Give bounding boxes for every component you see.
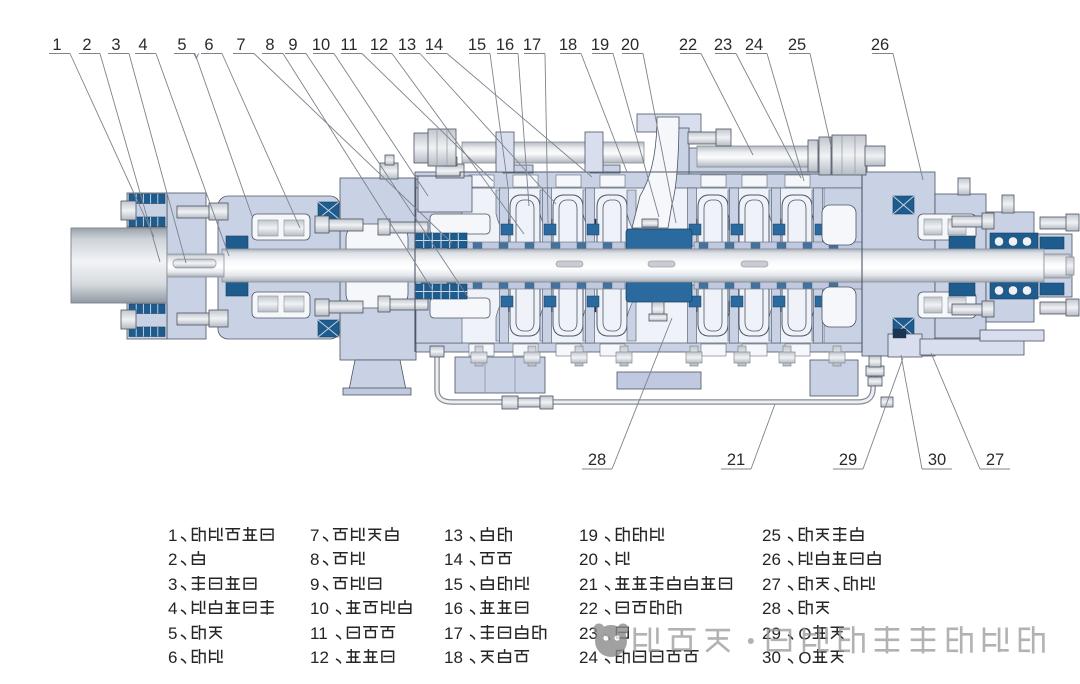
svg-text:28: 28: [762, 599, 781, 618]
svg-text:14: 14: [425, 36, 443, 54]
svg-text:2: 2: [82, 36, 91, 54]
svg-text:16: 16: [496, 36, 514, 54]
svg-text:4: 4: [138, 36, 147, 54]
svg-text:23: 23: [714, 36, 732, 54]
svg-text:13: 13: [444, 526, 463, 545]
svg-text:8: 8: [265, 36, 274, 54]
svg-text:24: 24: [745, 36, 763, 54]
svg-text:2: 2: [168, 550, 177, 569]
svg-text:7: 7: [236, 36, 245, 54]
svg-text:25: 25: [762, 526, 781, 545]
svg-text:1: 1: [52, 36, 61, 54]
svg-text:16: 16: [444, 599, 463, 618]
svg-text:10: 10: [312, 36, 330, 54]
svg-text:17: 17: [444, 624, 463, 643]
svg-text:27: 27: [986, 451, 1004, 469]
svg-text:3: 3: [168, 575, 177, 594]
svg-text:24: 24: [579, 648, 598, 667]
svg-text:7: 7: [310, 526, 319, 545]
svg-text:18: 18: [444, 648, 463, 667]
svg-text:25: 25: [788, 36, 806, 54]
svg-text:11: 11: [340, 36, 357, 54]
svg-text:28: 28: [588, 451, 606, 469]
svg-text:15: 15: [468, 36, 486, 54]
svg-text:14: 14: [444, 550, 463, 569]
svg-text:5: 5: [177, 36, 186, 54]
svg-text:17: 17: [523, 36, 541, 54]
svg-text:21: 21: [579, 575, 598, 594]
svg-text:30: 30: [928, 451, 946, 469]
svg-text:20: 20: [579, 550, 598, 569]
svg-text:26: 26: [762, 550, 781, 569]
svg-text:15: 15: [444, 575, 463, 594]
svg-text:21: 21: [727, 451, 745, 469]
svg-text:13: 13: [398, 36, 416, 54]
svg-text:9: 9: [310, 575, 319, 594]
svg-text:11: 11: [310, 624, 328, 643]
svg-text:5: 5: [168, 624, 177, 643]
svg-text:18: 18: [559, 36, 577, 54]
svg-text:12: 12: [310, 648, 329, 667]
svg-text:4: 4: [168, 599, 177, 618]
svg-text:6: 6: [168, 648, 177, 667]
svg-text:12: 12: [370, 36, 388, 54]
svg-text:1: 1: [168, 526, 177, 545]
svg-text:3: 3: [111, 36, 120, 54]
svg-text:10: 10: [310, 599, 329, 618]
svg-text:6: 6: [204, 36, 213, 54]
svg-text:20: 20: [621, 36, 639, 54]
svg-text:26: 26: [871, 36, 889, 54]
svg-text:9: 9: [288, 36, 297, 54]
svg-text:22: 22: [579, 599, 598, 618]
svg-text:29: 29: [839, 451, 857, 469]
svg-text:19: 19: [579, 526, 598, 545]
svg-text:8: 8: [310, 550, 319, 569]
svg-text:22: 22: [679, 36, 697, 54]
svg-text:19: 19: [591, 36, 609, 54]
svg-text:27: 27: [762, 575, 781, 594]
